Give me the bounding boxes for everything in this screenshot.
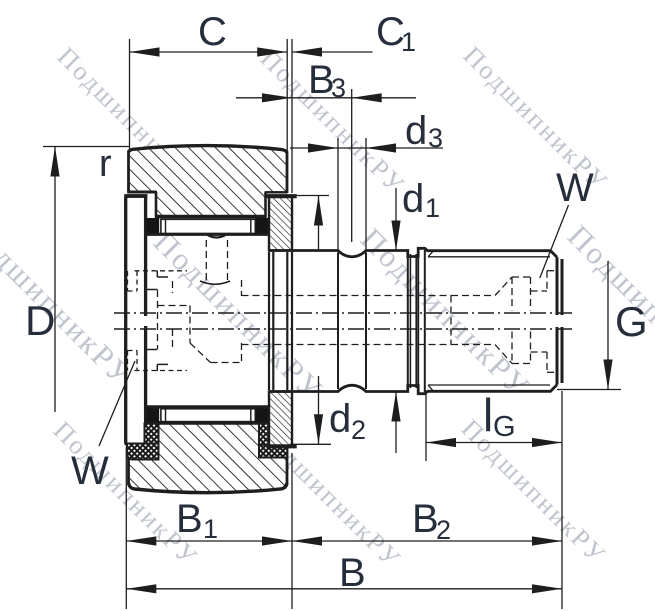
svg-text:W: W <box>71 449 109 493</box>
svg-text:d: d <box>402 177 424 221</box>
svg-text:B: B <box>176 497 203 541</box>
svg-text:3: 3 <box>331 73 346 103</box>
svg-text:1: 1 <box>401 27 416 57</box>
svg-text:G: G <box>493 411 516 443</box>
svg-text:2: 2 <box>351 415 366 445</box>
svg-text:D: D <box>25 297 55 344</box>
svg-text:d: d <box>329 397 351 441</box>
svg-text:3: 3 <box>428 123 443 153</box>
svg-text:G: G <box>615 298 648 345</box>
svg-text:C: C <box>198 10 227 54</box>
svg-text:1: 1 <box>425 193 440 223</box>
svg-text:l: l <box>483 389 493 441</box>
svg-text:W: W <box>556 166 594 210</box>
svg-text:d: d <box>405 109 427 153</box>
svg-text:2: 2 <box>436 515 451 545</box>
svg-text:B: B <box>339 551 366 595</box>
svg-text:1: 1 <box>203 514 218 544</box>
svg-text:B: B <box>412 497 439 541</box>
svg-text:r: r <box>99 143 112 185</box>
